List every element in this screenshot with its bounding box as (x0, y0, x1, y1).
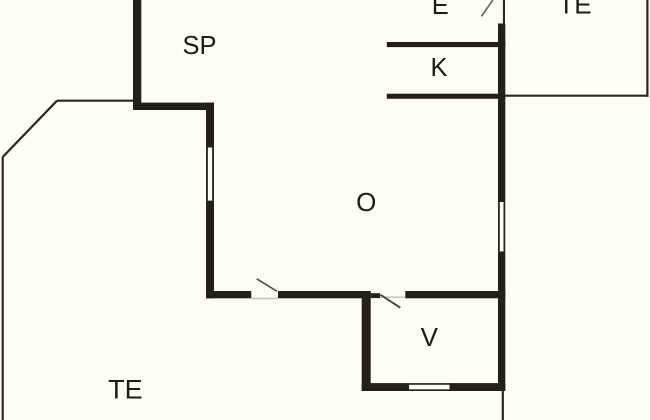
svg-text:TE: TE (108, 375, 143, 405)
svg-text:K: K (430, 54, 447, 82)
svg-text:E: E (432, 0, 449, 20)
svg-text:TE: TE (558, 0, 591, 19)
svg-text:SP: SP (182, 32, 216, 60)
svg-text:V: V (421, 322, 439, 352)
svg-text:O: O (356, 187, 376, 217)
